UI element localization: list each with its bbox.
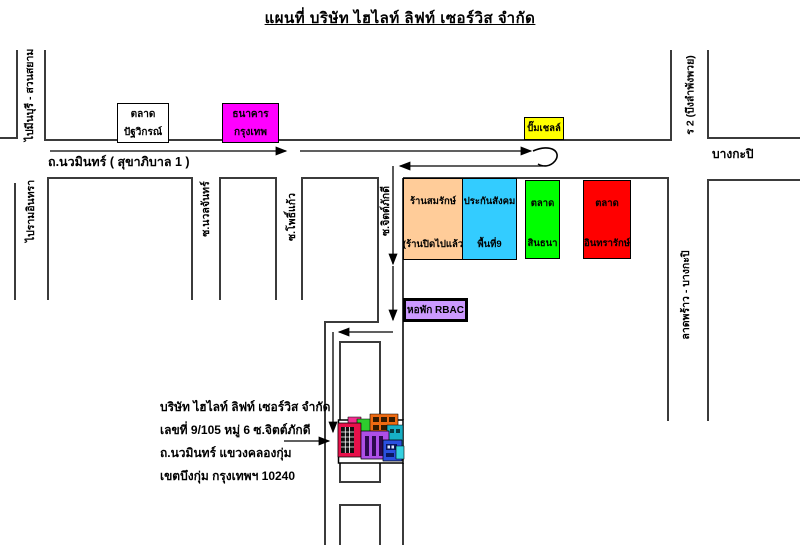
landmark-label: ธนาคาร [232,108,268,121]
landmark-label: ปัฐวิกรณ์ [124,126,162,139]
company-building-icon [338,414,404,461]
landmark-label: อินทรารักษ์ [584,237,630,250]
road-label-latphrao-bangkapi: ลาดพร้าว - บางกะปิ [679,240,693,350]
company-address-line: ถ.นวมินทร์ แขวงคลองกุ่ม [160,442,330,465]
road-label-bangkapi: บางกะปิ [712,145,754,164]
landmark-label: ตลาด [531,197,555,210]
road-label-to-minburi: ไปมีนบุรี - สวนสยาม [23,40,37,150]
landmark-label: ตลาด [595,197,619,210]
landmark-label: ตลาด [131,108,156,121]
landmark-label: กรุงเทพ [234,126,267,139]
road-label-to-ramindra: ไปรามอินทรา [24,171,38,251]
road-label-soi-chitphakdi: ซ.จิตต์ภักดี [379,173,393,249]
landmark-market-patwikorn: ตลาด ปัฐวิกรณ์ [117,103,169,143]
company-address-line: เขตบึงกุ่ม กรุงเทพฯ 10240 [160,465,330,488]
road-label-soi-phokaew: ซ.โพธิ์แก้ว [285,179,299,255]
road-label-ring2: ร 2 (บึงลำพังพวย) [684,43,698,148]
landmark-label: สินธนา [528,237,558,250]
company-address-line: เลขที่ 9/105 หมู่ 6 ซ.จิตต์ภักดี [160,419,330,442]
company-address-line: บริษัท ไฮไลท์ ลิฟท์ เซอร์วิส จำกัด [160,396,330,419]
landmark-label: (ร้านปิดไปแล้ว [403,238,463,251]
landmark-shell-station: ปั๊มเชลล์ [524,117,564,140]
map-canvas: แผนที่ บริษัท ไฮไลท์ ลิฟท์ เซอร์วิส จำกั… [0,0,800,546]
u-turn-icon [533,148,557,166]
landmark-label: พื้นที่9 [477,238,501,251]
landmark-rbac-dorm: หอพัก RBAC [403,298,468,322]
road-label-soi-nuanchan: ซ.นวลจันทร์ [199,169,213,249]
landmark-label: ประกันสังคม [464,195,516,208]
landmark-somrak-shop: ร้านสมรักษ์ (ร้านปิดไปแล้ว [403,178,463,260]
landmark-label: ปั๊มเชลล์ [527,122,561,135]
company-address: บริษัท ไฮไลท์ ลิฟท์ เซอร์วิส จำกัด เลขที… [160,396,330,488]
landmark-bank-bangkok: ธนาคาร กรุงเทพ [222,103,279,143]
landmark-social-security: ประกันสังคม พื้นที่9 [462,178,517,260]
road-label-nawamin: ถ.นวมินทร์ ( สุขาภิบาล 1 ) [48,152,190,172]
landmark-market-intararak: ตลาด อินทรารักษ์ [583,180,631,259]
landmark-market-sinthana: ตลาด สินธนา [525,180,560,259]
map-title: แผนที่ บริษัท ไฮไลท์ ลิฟท์ เซอร์วิส จำกั… [0,6,800,30]
landmark-label: ร้านสมรักษ์ [410,195,456,208]
landmark-label: หอพัก RBAC [407,304,464,317]
